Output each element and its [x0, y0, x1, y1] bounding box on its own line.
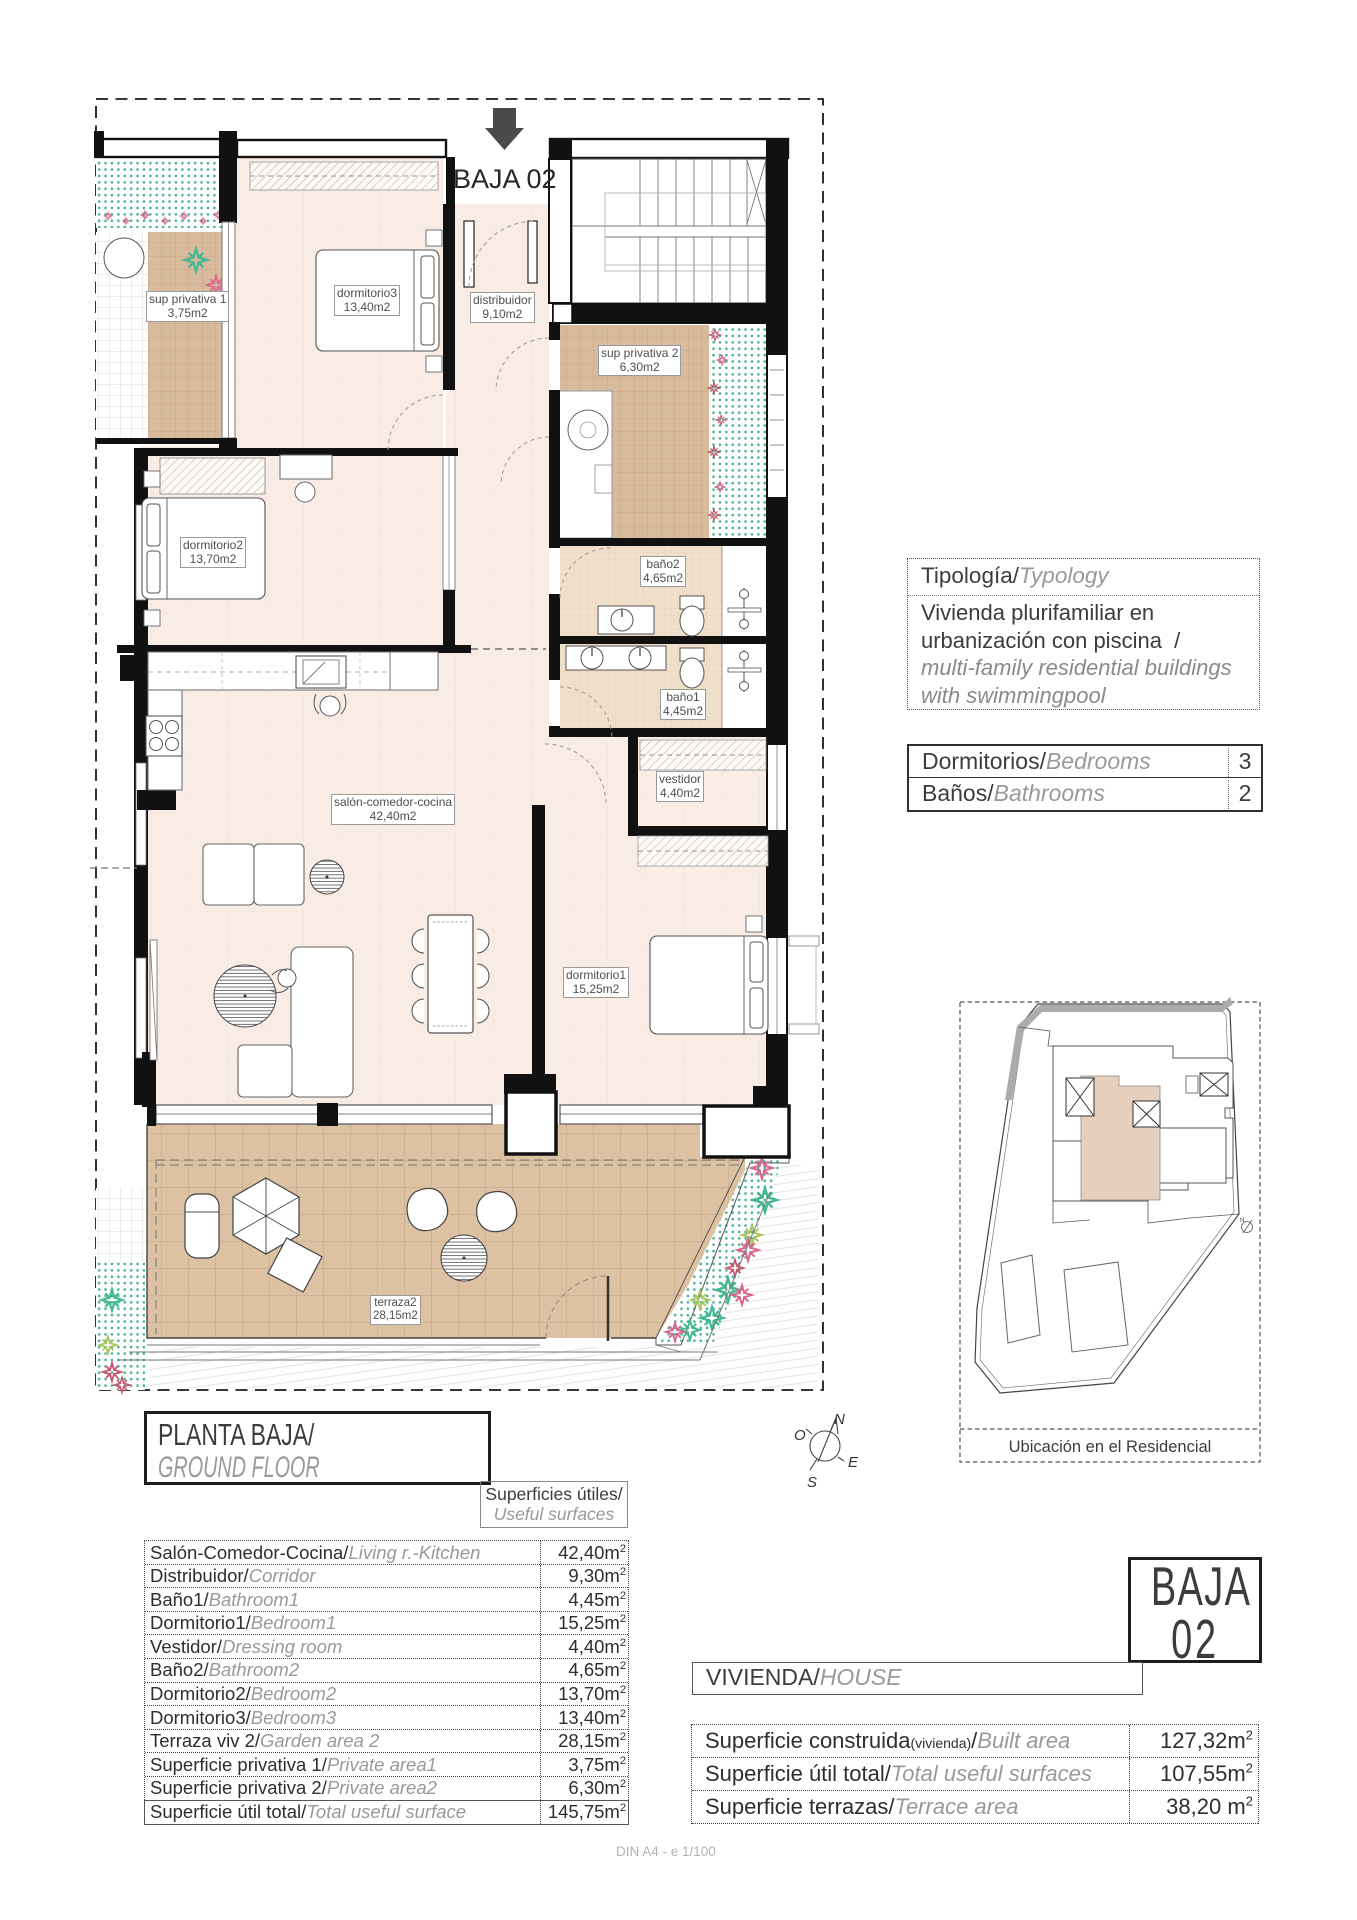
svg-text:O: O	[794, 1427, 806, 1444]
svg-text:N: N	[1240, 1218, 1244, 1224]
svg-text:Ubicación en el Residencial: Ubicación en el Residencial	[1009, 1438, 1212, 1456]
svg-text:S: S	[807, 1474, 817, 1491]
svg-text:N: N	[834, 1411, 845, 1428]
svg-text:E: E	[848, 1454, 859, 1471]
